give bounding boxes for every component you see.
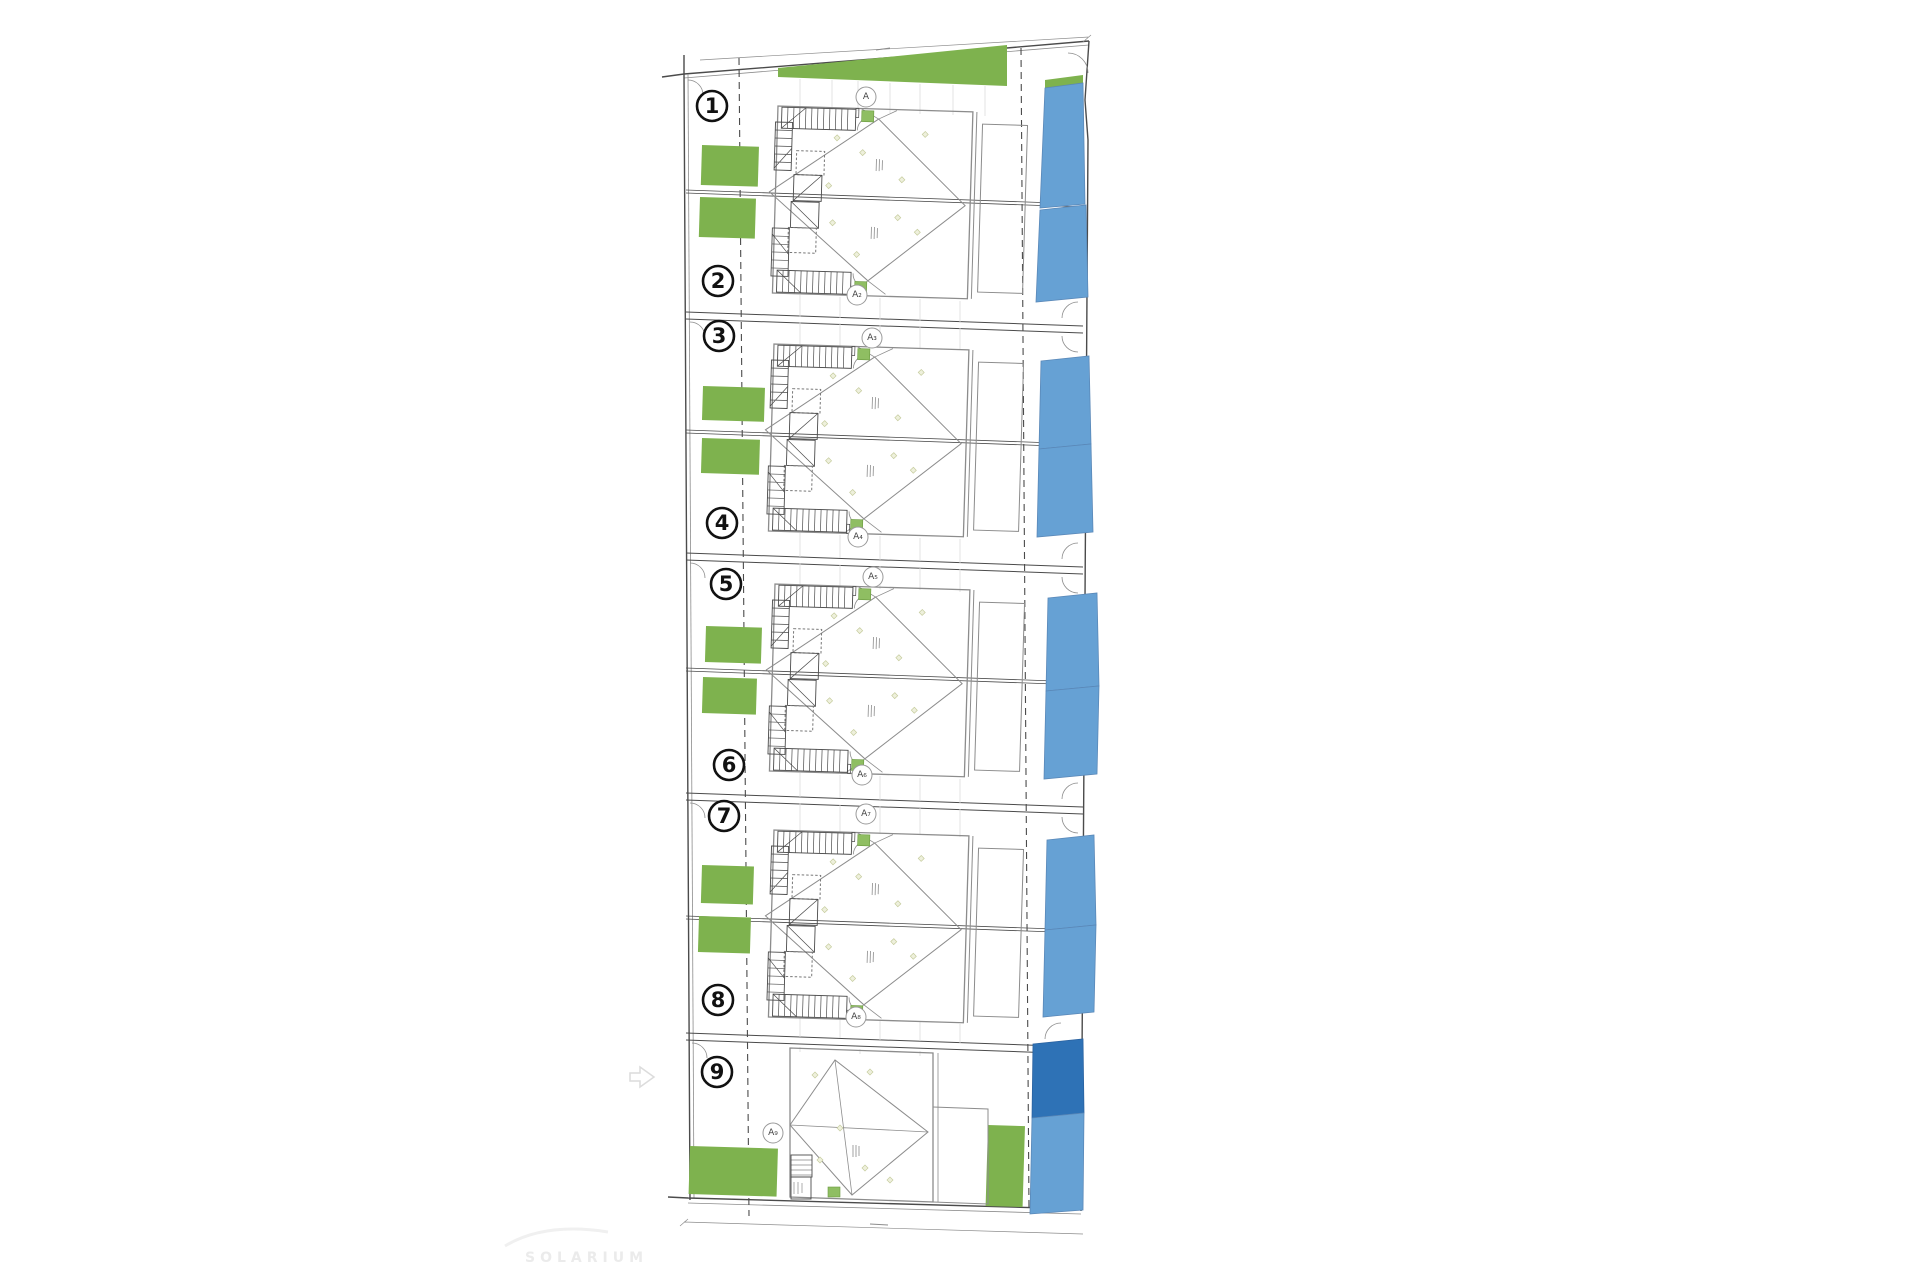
section-marker-a5: A₅ <box>863 567 883 587</box>
plot-number-5: 5 <box>711 569 741 599</box>
green-band-top <box>778 45 1007 86</box>
plot-number-label: 2 <box>711 269 726 293</box>
direction-arrow-icon <box>630 1067 654 1087</box>
guides-below-house-4 <box>800 533 960 563</box>
garden-plot-1 <box>701 145 759 187</box>
pool-plot-3 <box>1039 356 1091 449</box>
watermark: SOLARIUM <box>505 1229 648 1266</box>
section-marker-label: A₅ <box>868 572 878 582</box>
house-9-stairs <box>791 1155 812 1177</box>
watermark-swoosh <box>505 1229 608 1246</box>
section-marker-label: A₇ <box>861 809 871 819</box>
house-9-room-label <box>794 1182 802 1194</box>
gate-arc <box>1068 53 1088 73</box>
plot-number-6: 6 <box>714 750 744 780</box>
plot-number-8: 8 <box>703 985 733 1015</box>
section-marker-label: A₈ <box>851 1012 861 1022</box>
gate-arc <box>690 563 705 578</box>
pool-plot-9 <box>1030 1113 1084 1214</box>
house-plots-5-6 <box>763 584 1024 779</box>
house-9-roof-vents <box>812 1069 893 1183</box>
garden-plot-9-right <box>986 1125 1025 1207</box>
pool-plot-5 <box>1046 593 1099 691</box>
plot-number-1: 1 <box>697 91 727 121</box>
garden-plot-8 <box>698 916 751 954</box>
plot-number-label: 7 <box>717 804 732 828</box>
garden-plot-2 <box>699 197 756 239</box>
section-marker-label: A₉ <box>768 1128 778 1138</box>
house-9-entry-mat <box>828 1187 840 1197</box>
site-plan-page: 1 2 3 4 5 6 7 8 <box>0 0 1920 1280</box>
house-9-outline <box>790 1048 933 1202</box>
garden-plot-5 <box>705 626 762 664</box>
house-9-roof-area-label <box>853 1145 859 1157</box>
section-marker-a9: A₉ <box>763 1123 783 1143</box>
plot-number-label: 6 <box>722 753 737 777</box>
gate-arc <box>692 1043 707 1058</box>
dimension-text-bottom <box>870 1224 888 1225</box>
pool-plot-7 <box>1045 835 1096 930</box>
section-marker-label: A₃ <box>867 333 877 343</box>
house-9-stairs-hatch <box>791 1160 812 1175</box>
gate-arc <box>1062 302 1078 352</box>
plot-number-4: 4 <box>707 508 737 538</box>
alley-plot-4-5 <box>686 553 1083 574</box>
section-marker-label: A₆ <box>857 770 867 780</box>
gate-arc <box>688 80 703 95</box>
house-plots-7-8 <box>762 830 1023 1025</box>
pool-plot-4 <box>1037 444 1093 537</box>
pool-plot-2 <box>1036 205 1088 302</box>
section-marker-a3: A₃ <box>862 328 882 348</box>
section-marker-a6: A₆ <box>852 765 872 785</box>
section-marker-a7: A₇ <box>856 804 876 824</box>
pool-plot-6 <box>1044 686 1099 779</box>
plot-number-label: 1 <box>705 94 720 118</box>
house-plots-1-2 <box>766 106 1027 301</box>
garden-plot-4 <box>701 438 760 475</box>
house-9-terrace <box>933 1107 988 1204</box>
section-marker-label: A <box>863 92 870 102</box>
garden-plot-6 <box>702 677 757 715</box>
guides-below-house-2 <box>800 295 960 323</box>
plot-number-label: 5 <box>719 572 734 596</box>
gate-arc <box>1062 543 1078 593</box>
plot-number-3: 3 <box>704 321 734 351</box>
section-marker-label: A₄ <box>853 532 863 542</box>
section-marker-a2: A₂ <box>847 285 867 305</box>
pool-plot-1 <box>1040 83 1085 208</box>
plot-number-2: 2 <box>703 266 733 296</box>
plot-number-9: 9 <box>702 1057 732 1087</box>
plot-number-label: 3 <box>712 324 727 348</box>
garden-plot-3 <box>702 386 765 422</box>
section-marker-a4: A₄ <box>848 527 868 547</box>
plot-number-label: 9 <box>710 1060 725 1084</box>
pools <box>1030 83 1099 1214</box>
pool-plot-8 <box>1043 925 1096 1017</box>
house-plot-9 <box>790 1048 988 1204</box>
dimension-line-bottom <box>680 1219 1083 1234</box>
watermark-label: SOLARIUM <box>525 1250 648 1266</box>
guides-below-house-6 <box>800 773 960 803</box>
plot-number-label: 4 <box>715 511 730 535</box>
gate-arc <box>1062 783 1078 833</box>
plot-number-label: 8 <box>711 988 726 1012</box>
guides-above-house-1 <box>800 79 985 116</box>
garden-plot-9-left <box>689 1146 778 1197</box>
section-marker-a8: A₈ <box>846 1007 866 1027</box>
plot-number-7: 7 <box>709 801 739 831</box>
house-plots-3-4 <box>762 344 1023 539</box>
site-plan-drawing: 1 2 3 4 5 6 7 8 <box>0 0 1920 1280</box>
section-marker-a: A <box>856 87 876 107</box>
section-marker-label: A₂ <box>852 290 862 300</box>
pool-plot-9-deep <box>1032 1039 1084 1118</box>
garden-plot-7 <box>701 865 754 905</box>
